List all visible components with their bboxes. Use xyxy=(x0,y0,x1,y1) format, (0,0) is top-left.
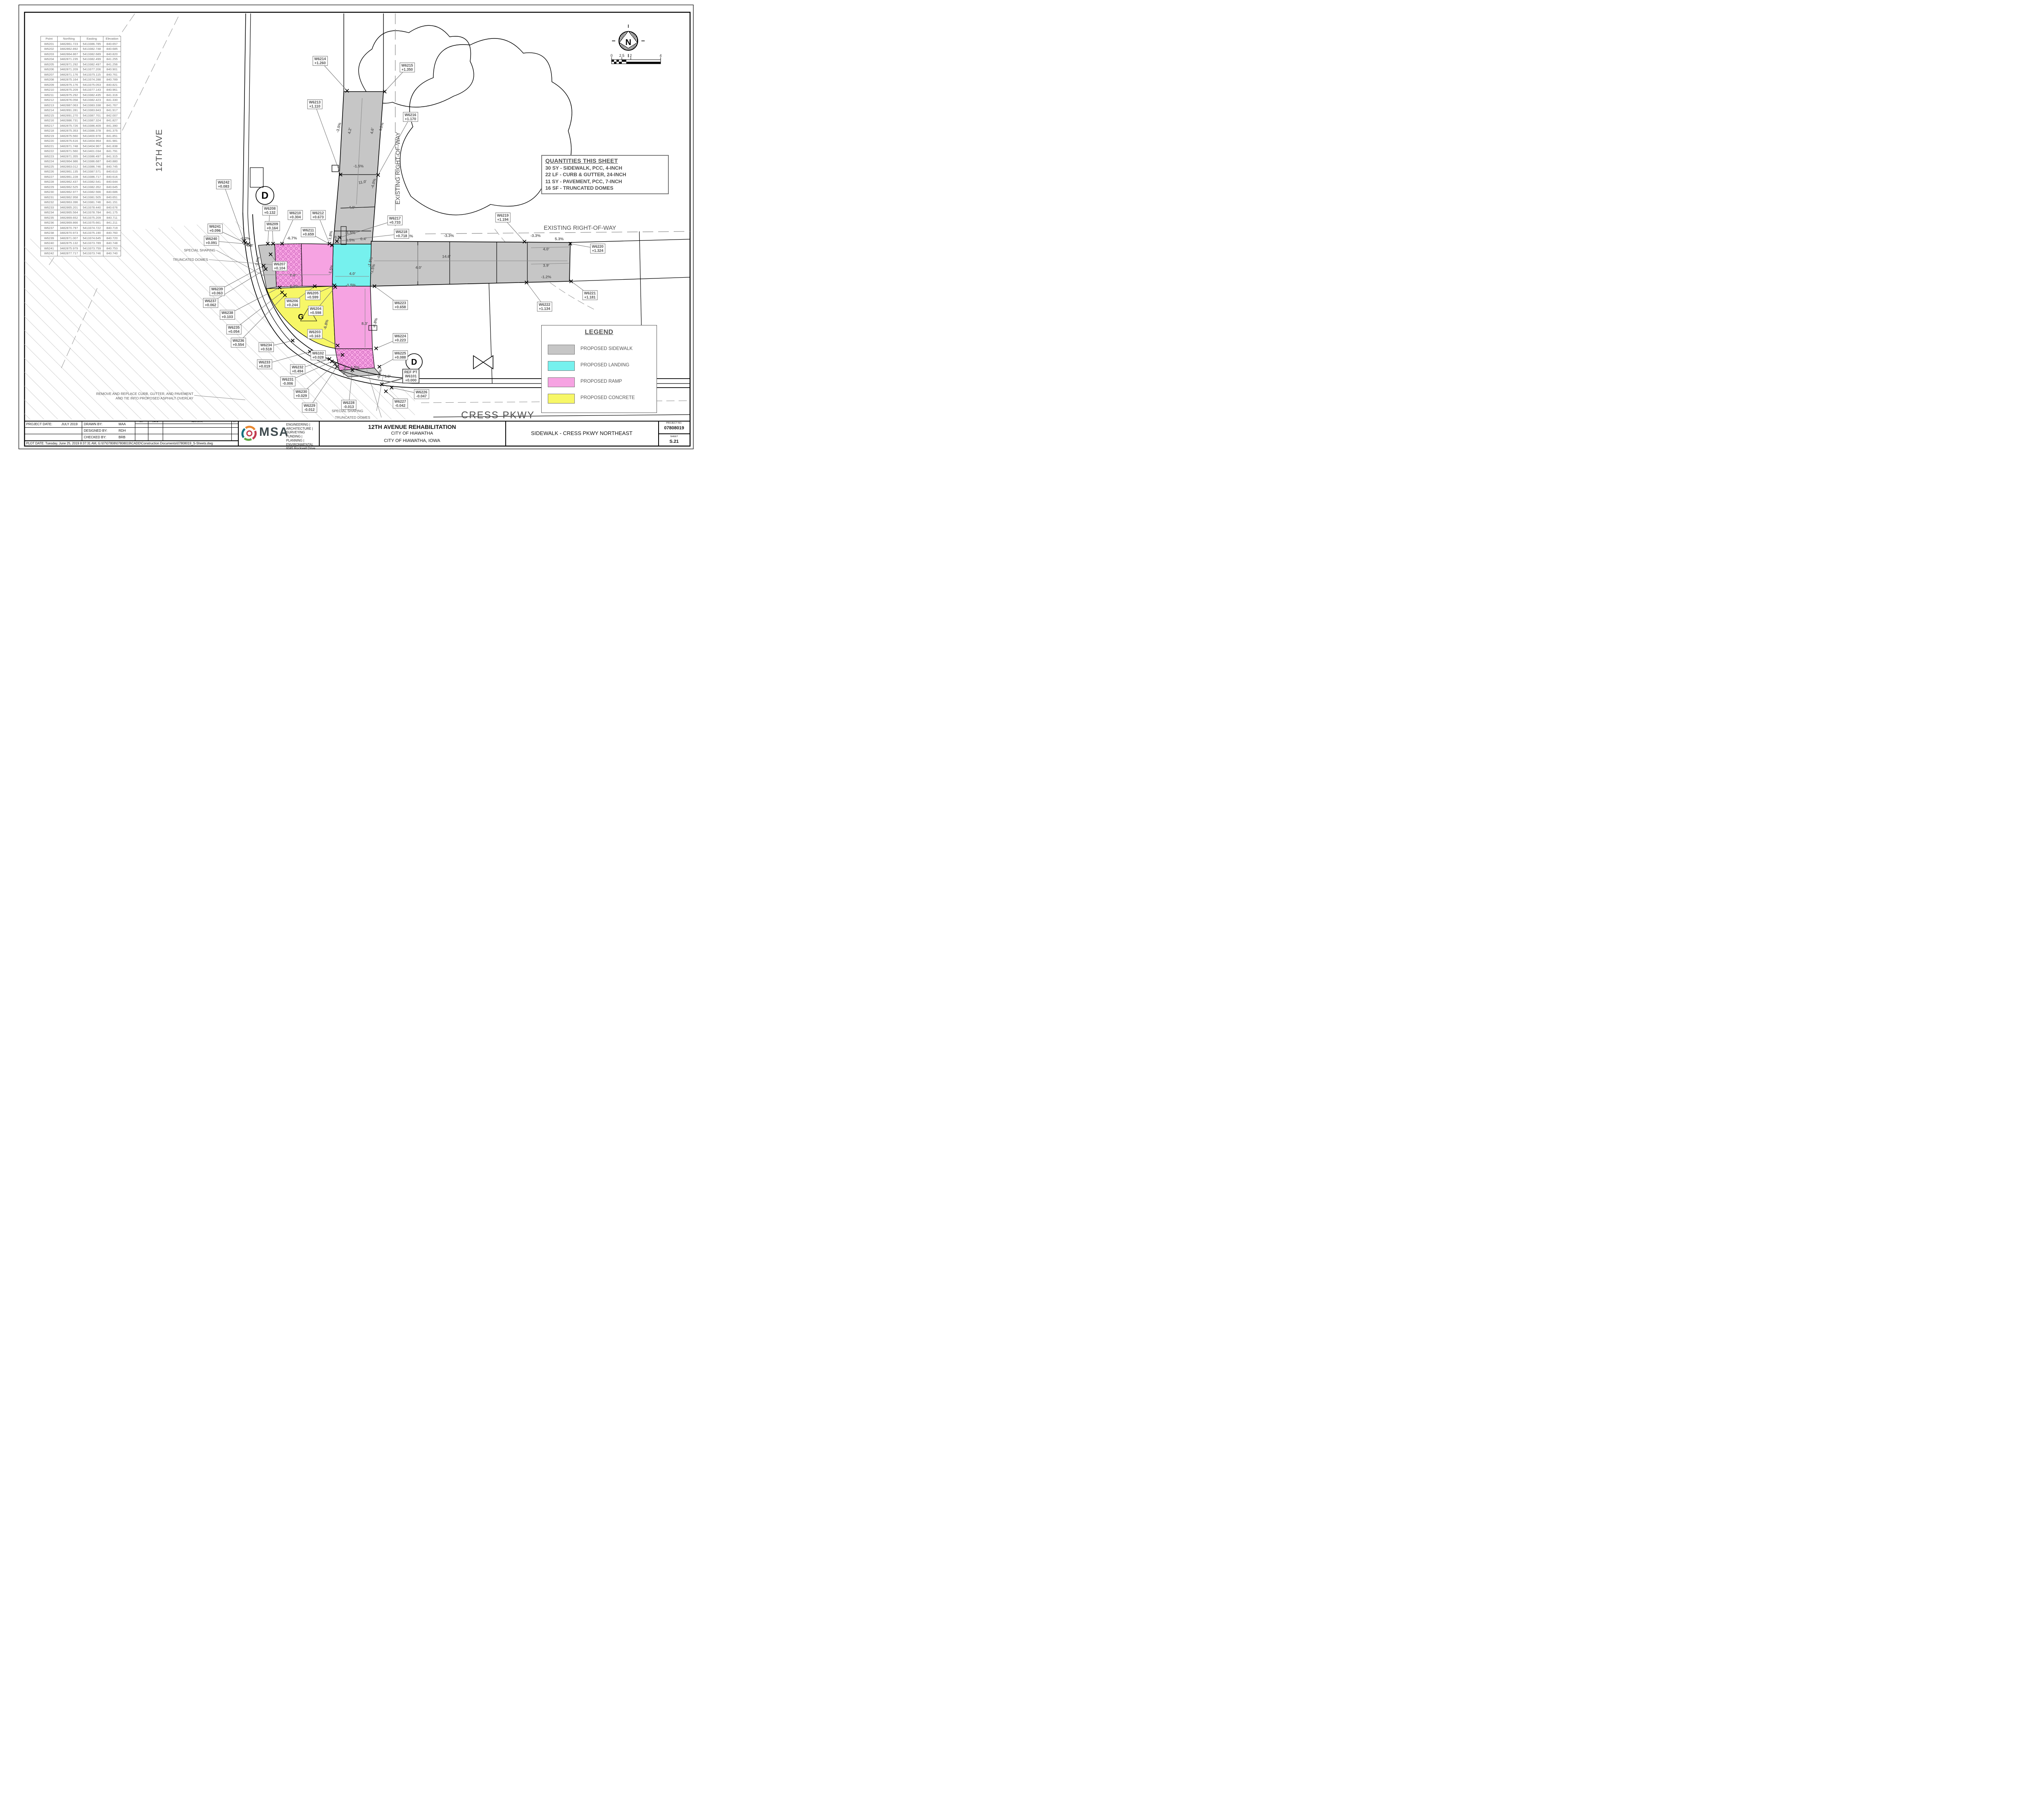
scale-tick-25: 2.5 xyxy=(618,54,626,58)
annotation-label: -1.5% xyxy=(345,231,356,236)
proposed-ramp-west xyxy=(301,244,333,286)
annotation-label: -1.5% xyxy=(327,265,334,276)
annotation-label: 1.5% xyxy=(346,238,355,243)
sheet-no-label: SHEET xyxy=(658,435,690,438)
callout-W6215: W6215+1.350 xyxy=(400,63,415,72)
callout-W6231: W6231-0.006 xyxy=(280,377,296,386)
legend-item: PROPOSED SIDEWALK xyxy=(542,341,657,357)
project-no-value: 07808019 xyxy=(658,426,690,431)
annotation-label: 1.3' xyxy=(384,375,390,379)
plan-sheet: D D G N xyxy=(0,0,695,450)
removal-note-line2: AND TIE INTO PROPOSED ASPHALT OVERLAY xyxy=(78,396,193,400)
project-date-value: JULY 2019 xyxy=(61,422,78,426)
sheet-title: SIDEWALK - CRESS PKWY NORTHEAST xyxy=(505,430,658,436)
callout-W6223: W6223+0.658 xyxy=(393,300,408,310)
table-row: W62273482861.2285413386.717840.616 xyxy=(41,174,121,179)
table-row: W62143482891.2815413383.843841.917 xyxy=(41,108,121,113)
msa-services-2: FUNDING | PLANNING | ENVIRONMENTAL xyxy=(286,435,319,446)
table-row: W62283482862.4375413382.541840.644 xyxy=(41,179,121,185)
pt-header-northing: Northing xyxy=(58,36,81,42)
callout-W6229: W6229-0.012 xyxy=(302,403,317,413)
annotation-label: -6.8% xyxy=(376,369,383,380)
sheet-no-value: S.21 xyxy=(658,439,690,444)
callout-W6221: W6221+1.181 xyxy=(583,290,598,300)
street-name-12th-ave: 12TH AVE xyxy=(155,129,164,172)
table-row: W62363482869.8665413375.661841.211 xyxy=(41,220,121,226)
legend-label: PROPOSED RAMP xyxy=(580,379,622,384)
plot-date: PLOT DATE: Tuesday, June 25, 2019 8:37:3… xyxy=(26,442,213,445)
annotation-label: 4.2' xyxy=(347,127,353,134)
legend-label: PROPOSED SIDEWALK xyxy=(580,346,632,351)
proposed-landing xyxy=(332,244,371,286)
designed-by-value: RDH xyxy=(119,429,126,433)
table-row: W62123482876.0585413382.423841.330 xyxy=(41,98,121,103)
annotation-label: -1.5% xyxy=(346,283,356,288)
callout-W6236: W6236+0.554 xyxy=(231,338,246,348)
table-row: W62183482875.3535413386.378841.375 xyxy=(41,128,121,134)
table-row: W62113482875.2925413382.435841.316 xyxy=(41,92,121,98)
pt-header-point: Point xyxy=(41,36,58,42)
quantity-item-2: 11 SY - PAVEMENT, PCC, 7-INCH xyxy=(545,179,665,184)
annotation-label: 3.9' xyxy=(543,264,549,268)
callout-W6237: W6237+0.062 xyxy=(203,298,218,308)
project-title: 12TH AVENUE REHABILITATION xyxy=(319,424,505,430)
table-row: W62203482875.6165413404.964841.981 xyxy=(41,139,121,144)
callout-W6210: W6210+0.304 xyxy=(288,210,303,220)
designed-by-label: DESIGNED BY: xyxy=(84,429,108,433)
annotation-label: -3.3% xyxy=(444,234,454,238)
table-row: W62063482871.2095413377.206840.901 xyxy=(41,67,121,72)
annotation-label: -4.0% xyxy=(370,178,377,189)
checked-by-label: CHECKED BY: xyxy=(84,435,106,439)
table-row: W62033482864.8675413382.689840.820 xyxy=(41,52,121,57)
table-row: W62233482871.3555413386.497841.315 xyxy=(41,154,121,159)
proposed-sidewalk-horizontal xyxy=(370,241,570,286)
removal-note-line1: REMOVE AND REPLACE CURB, GUTTER, AND PAV… xyxy=(78,392,193,396)
annotation-label: 4.0' xyxy=(349,272,355,276)
annotation-label: -6.7% xyxy=(289,285,299,289)
callout-W6208: W6208+0.132 xyxy=(262,206,278,215)
quantity-item-0: 30 SY - SIDEWALK, PCC, 4-INCH xyxy=(545,165,665,171)
table-row: W62193482875.5605413400.978841.851 xyxy=(41,133,121,139)
legend-swatch xyxy=(548,377,575,387)
annotation-label: 7.4' xyxy=(289,274,296,278)
annotation-label: -6.2% xyxy=(240,237,251,241)
svg-text:D: D xyxy=(261,190,268,201)
legend-label: PROPOSED CONCRETE xyxy=(580,395,635,400)
truncated-domes-label-west: TRUNCATED DOMES xyxy=(145,258,208,262)
callout-W6234: W6234+0.518 xyxy=(259,342,274,352)
table-row: W62413482875.9795413373.759840.753 xyxy=(41,246,121,251)
table-row: W62103482875.2095413377.143840.961 xyxy=(41,87,121,93)
table-row: W62053482871.2925413382.497841.256 xyxy=(41,62,121,67)
callout-W6220: W6220+1.324 xyxy=(590,244,605,253)
table-row: W62253482863.0125413386.746840.745 xyxy=(41,164,121,169)
annotation-label: 0.8' xyxy=(334,236,341,240)
quantities-title: QUANTITIES THIS SHEET xyxy=(545,157,665,164)
table-row: W62163482886.7315413387.324841.827 xyxy=(41,118,121,123)
callout-W6241: W6241+0.096 xyxy=(208,224,223,233)
special-shaping-label-south: SPECIAL SHAPING xyxy=(319,409,376,413)
callout-W6219: W6219+1.194 xyxy=(495,213,511,222)
table-row: W62353482869.6525413375.209840.711 xyxy=(41,215,121,220)
table-row: W62423482877.7175413373.746840.740 xyxy=(41,251,121,256)
drawn-by-label: DRAWN BY: xyxy=(84,422,103,426)
table-row: W62023482862.8925413382.748840.685 xyxy=(41,47,121,52)
point-coordinate-table: Point Northing Easting Elevation W620134… xyxy=(40,36,121,256)
row-lines xyxy=(395,13,690,234)
annotation-label: -3.3% xyxy=(531,234,541,238)
table-row: W62303482862.9775413382.566840.686 xyxy=(41,190,121,195)
row-label-horizontal: EXISTING RIGHT-OF-WAY xyxy=(544,225,616,231)
structure-D2-symbol: D xyxy=(369,325,422,370)
rev-revision-header: REVISION xyxy=(164,421,231,423)
callout-W6242: W6242+0.083 xyxy=(216,179,231,189)
street-name-cress-pkwy: CRESS PKWY xyxy=(461,410,535,421)
north-arrow-icon: N xyxy=(612,25,645,57)
callout-W6207: W6207+0.104 xyxy=(272,261,287,271)
callout-W6214: W6214+1.260 xyxy=(313,56,328,66)
table-row: W62133482887.0635413383.338841.767 xyxy=(41,103,121,108)
callout-W6211: W6211+0.659 xyxy=(301,227,316,237)
annotation-label: 11.0' xyxy=(358,179,367,185)
annotation-label: -6.8% xyxy=(372,318,379,329)
msa-address: 6045 Rockwell Drive NE, Cedar Rapids IA … xyxy=(286,446,319,450)
callout-W6240: W6240+0.091 xyxy=(204,236,219,246)
quantity-item-3: 16 SF - TRUNCATED DOMES xyxy=(545,185,665,191)
drawn-by-value: MAA xyxy=(119,422,126,426)
table-row: W62393482871.0075413374.645840.720 xyxy=(41,236,121,241)
legend-title: LEGEND xyxy=(542,329,657,336)
annotation-label: 0.4' xyxy=(360,237,366,242)
annotation-label: -1.5% xyxy=(354,164,364,169)
annotation-label: 8.3' xyxy=(361,322,368,326)
table-row: W62263482861.1355413387.571840.610 xyxy=(41,169,121,175)
callout-W6235: W6235+0.054 xyxy=(226,325,242,334)
callout-W6222: W6222+1.134 xyxy=(537,302,552,312)
project-date-label: PROJECT DATE: xyxy=(26,422,52,426)
table-row: W62323482863.3965413381.746841.151 xyxy=(41,200,121,205)
scale-bar xyxy=(612,57,661,64)
svg-text:D: D xyxy=(411,358,417,367)
table-row: W62173482875.7265413386.409841.390 xyxy=(41,123,121,128)
table-row: W62293482862.5255413382.352840.645 xyxy=(41,184,121,190)
legend-item: PROPOSED CONCRETE xyxy=(542,390,657,406)
pt-header-easting: Easting xyxy=(81,36,103,42)
legend-item: PROPOSED LANDING xyxy=(542,357,657,374)
annotation-label: 5.3% xyxy=(555,237,564,242)
project-no-label: PROJECT NO. xyxy=(658,422,690,424)
callout-W6227: W6227-0.042 xyxy=(393,399,408,408)
quantity-item-1: 22 LF - CURB & GUTTER, 24-INCH xyxy=(545,172,665,177)
callout-W6230: W6230+0.029 xyxy=(294,389,309,399)
tree-outline xyxy=(359,25,572,215)
truncated-domes-label-south: TRUNCATED DOMES xyxy=(323,415,382,419)
scale-tick-4: 4 xyxy=(657,54,664,58)
table-row: W62213482871.7485413404.967841.838 xyxy=(41,144,121,149)
checked-by-value: BRB xyxy=(119,435,126,439)
table-row: W62343482865.5645413378.784841.175 xyxy=(41,210,121,215)
callout-W6206: W6206+0.244 xyxy=(285,298,300,308)
svg-text:N: N xyxy=(625,38,631,47)
joint-lines xyxy=(334,175,527,285)
callout-W6238: W6238+0.103 xyxy=(220,310,235,320)
callout-W6102: W6102+0.028 xyxy=(311,350,326,360)
annotation-label: 4.0' xyxy=(415,266,421,270)
rev-date-header: DATE xyxy=(149,421,162,423)
rev-by-header: BY xyxy=(231,421,238,423)
callout-W6212: W6212+0.673 xyxy=(311,210,326,220)
callout-W6228: W6228-0.013 xyxy=(341,400,356,410)
table-row: W62153482891.2705413387.701842.007 xyxy=(41,113,121,118)
table-row: W62403482875.1325413373.789840.748 xyxy=(41,241,121,246)
annotation-label: -1.2% xyxy=(541,275,551,280)
annotation-label: -1.5% xyxy=(254,256,261,267)
svg-text:G: G xyxy=(298,313,304,321)
table-row: W62043482871.2355413382.499841.255 xyxy=(41,57,121,62)
rev-no-header: NO. xyxy=(136,421,147,423)
annotation-label: 14.6' xyxy=(442,255,451,259)
msa-services-1: ENGINEERING | ARCHITECTURE | SURVEYING xyxy=(286,423,319,435)
table-row: W62313482862.9585413381.505840.651 xyxy=(41,195,121,200)
table-row: W62243482864.9865413386.687840.880 xyxy=(41,159,121,164)
table-row: W62333482865.2015413378.440840.676 xyxy=(41,205,121,210)
callout-W6209: W6209+0.164 xyxy=(265,221,280,231)
callout-W6233: W6233+0.019 xyxy=(257,359,272,369)
contour-dash xyxy=(495,229,597,311)
legend-swatch xyxy=(548,394,575,404)
structure-D-symbol: D xyxy=(250,168,274,204)
legend-item: PROPOSED RAMP xyxy=(542,374,657,390)
callout-W6218: W6218+0.718 xyxy=(394,229,409,239)
annotation-label: -1.8% xyxy=(327,231,334,241)
callout-W6205: W6205+0.599 xyxy=(305,290,320,300)
legend-label: PROPOSED LANDING xyxy=(580,363,630,368)
pt-header-elevation: Elevation xyxy=(103,36,121,42)
proposed-ramp-south xyxy=(332,286,372,349)
row-label-vertical: EXISTING RIGHT-OF-WAY xyxy=(395,132,401,204)
callout-W6217: W6217+0.733 xyxy=(388,215,403,225)
callout-W6203: W6203+0.163 xyxy=(307,329,323,339)
table-row: W62083482875.1645413374.288840.789 xyxy=(41,77,121,83)
proposed-concrete xyxy=(267,286,335,348)
utility-box xyxy=(341,227,346,245)
legend-box: LEGEND PROPOSED SIDEWALKPROPOSED LANDING… xyxy=(541,325,657,413)
legend-swatch xyxy=(548,361,575,371)
client-line1: CITY OF HIAWATHA xyxy=(319,431,505,436)
annotation-label: -6.7% xyxy=(287,236,297,241)
callout-W6204: W6204+0.598 xyxy=(308,306,323,316)
callout-W6101: REF PTW6101+0.000 xyxy=(402,369,419,384)
annotation-label: 0.8' xyxy=(247,244,253,248)
callout-W6225: W6225+0.088 xyxy=(393,350,408,360)
scale-tick-0: 0 xyxy=(608,54,615,58)
annotation-label: -3.5% xyxy=(335,122,342,133)
callout-W6239: W6239+0.063 xyxy=(210,286,225,296)
table-row: W62223482871.5605413401.034841.791 xyxy=(41,149,121,154)
annotation-label: 4.0' xyxy=(543,247,549,252)
client-line2: CITY OF HIAWATHA, IOWA xyxy=(319,438,505,443)
special-shaping-label-west: SPECIAL SHAPING xyxy=(155,248,215,252)
table-row: W62093482875.1765413375.053840.821 xyxy=(41,82,121,87)
callout-W6216: W6216+1.170 xyxy=(403,112,418,122)
annotation-label: -1.9% xyxy=(341,365,348,376)
callout-W6226: W6226-0.047 xyxy=(414,389,429,399)
table-row: W62073482871.1765413375.115840.761 xyxy=(41,72,121,77)
legend-swatch xyxy=(548,345,575,354)
annotation-label: -4.0% xyxy=(378,122,385,133)
quantities-box: QUANTITIES THIS SHEET 30 SY - SIDEWALK, … xyxy=(541,155,669,194)
annotation-label: -1.5% xyxy=(350,366,360,370)
table-row: W62383482870.9735413375.190840.760 xyxy=(41,231,121,236)
valve-bowtie-icon xyxy=(473,356,493,369)
table-row: W62013482861.7235413386.785840.657 xyxy=(41,41,121,47)
annotation-label: 4.6' xyxy=(370,127,375,134)
table-row: W62373482870.7975413374.722840.719 xyxy=(41,225,121,231)
callout-W6232: W6232+0.494 xyxy=(290,364,305,374)
scale-tick-2: 2 xyxy=(628,54,634,58)
inlet-box xyxy=(332,165,338,172)
annotation-label: -6.8% xyxy=(323,319,329,330)
callout-W6224: W6224+0.223 xyxy=(393,333,408,343)
callout-W6213: W6213+1.110 xyxy=(307,99,323,109)
annotation-label: 4.0' xyxy=(349,206,355,210)
